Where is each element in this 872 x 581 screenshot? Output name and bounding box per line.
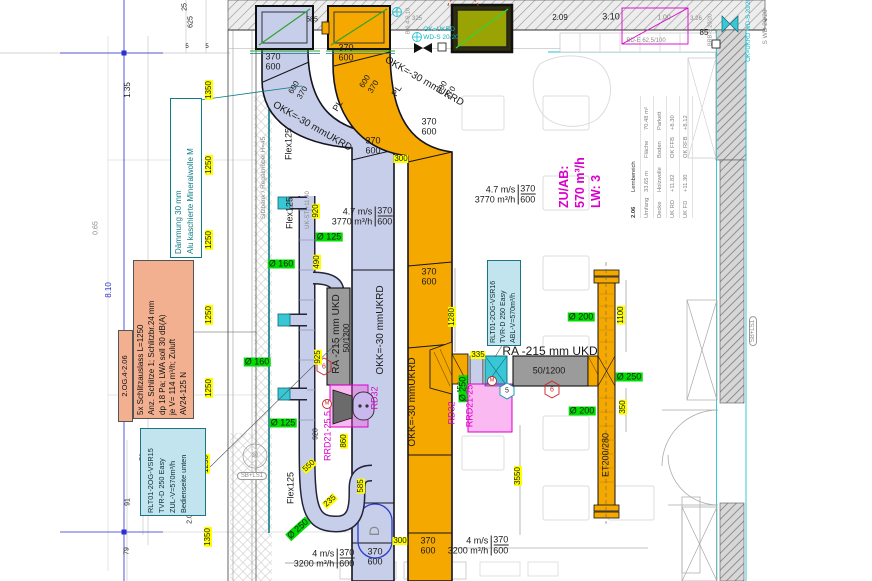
uk-st-label: UK-ST +11.40 [305, 191, 311, 229]
dim-label: 585 [306, 17, 318, 24]
yellow-dim: 1250 [205, 378, 213, 398]
ok-ukrd-note: OK=UKRD WD-S 20/20 [746, 0, 752, 62]
wall-cabinets [682, 300, 717, 581]
dim-label: 91 [125, 498, 132, 506]
yellow-dim: 1100 [617, 305, 625, 324]
motor-label: M [325, 401, 330, 407]
damper-bowtie [414, 43, 423, 53]
position-number: 6 [550, 387, 554, 394]
flow-label-extract: 4.7 m/s3770 m³/h 370600 [475, 184, 536, 205]
silencer-size-label: 50/1200 [533, 367, 566, 376]
duct-size-pair: 370600 [421, 118, 436, 137]
rrd-label: RRD21-25 [466, 385, 475, 428]
dim-label: 325 [412, 16, 422, 22]
b04-label: B-0.4-S.10 [406, 8, 412, 34]
flow-label-extract-bottom: 4 m/s3200 m³/h 370600 [448, 535, 509, 556]
yellow-dim: 300 [392, 537, 407, 545]
dim-label: 5 [185, 44, 188, 50]
yellow-dim: 1250 [205, 305, 213, 325]
flow-label-supply-bottom: 4 m/s3200 m³/h 370600 [294, 548, 355, 569]
duct-size-pair: 370600 [265, 53, 280, 72]
hvac-floor-plan: 585 2.09 3.10 1.00 3.26 85 325 25 625 5 … [0, 0, 872, 581]
diameter-label: Ø 160 [244, 358, 271, 367]
dim-label: 5 [205, 44, 208, 50]
ok-ukrd-note: OK=UKRDWD-S 20/20 [423, 26, 458, 42]
d-marker-label: D [367, 526, 381, 536]
position-number: 6 [322, 364, 326, 371]
door-swings [662, 410, 718, 505]
dim-label: 3.10 [602, 13, 620, 22]
detail-circle-label: 30 [252, 453, 259, 459]
yellow-dim: 300 [393, 155, 408, 163]
dim-label: 1.00 [657, 15, 671, 22]
yellow-dim: 335 [470, 351, 485, 359]
yellow-dim: 1280 [448, 307, 456, 327]
left-wall-band [228, 30, 272, 581]
dim-label: 625 [188, 16, 195, 28]
yellow-dim: 585 [357, 478, 365, 493]
slot-outlet-note: 5x Schlitzauslass L=1250 Anz. Schlitze 1… [133, 260, 194, 419]
dim-label: 79 [124, 547, 131, 555]
yellow-dim: 350 [619, 399, 627, 414]
yellow-dim: 490 [313, 254, 321, 269]
room-tag-strip: 2.OG.4-2.06 [118, 330, 133, 422]
extract-branch [452, 262, 619, 524]
yellow-dim: 860 [340, 433, 348, 448]
room-stamp: 2.06Lernbereich Umfang33.65 mFläche70.48… [628, 96, 694, 218]
et-duct-label: ET200/280 [602, 433, 611, 477]
duct-size-pair: 370600 [420, 537, 435, 556]
vsr15-component-tag: RLT01-2OG-VSR15 TVR-D 250 Easy ZUL-V=570… [140, 428, 206, 516]
yellow-dim: 1250 [205, 230, 213, 250]
duct-size-pair: 370600 [421, 268, 436, 287]
rd32-label: RD32 [448, 401, 457, 424]
rd32-label: RD32 [371, 386, 380, 409]
motor-label: M [490, 378, 495, 384]
silencer-size-label: 50/1200 [343, 324, 351, 353]
ra-level-label: RA -215 mm UKD [332, 294, 342, 373]
yellow-dim: 1350 [204, 527, 212, 547]
insulation-note: Dämmung 30 mm Alu kaschierte Mineralwoll… [170, 98, 202, 258]
yellow-dim: 925 [314, 349, 322, 364]
diameter-label: Ø 160 [268, 260, 295, 269]
diameter-label: Ø 200 [568, 313, 595, 322]
dim-label: 1.35 [124, 82, 132, 98]
duct-size-pair: 370600 [338, 44, 353, 63]
diameter-label: Ø 125 [316, 233, 343, 242]
rrd-label: RRD21-25.5 [324, 411, 333, 461]
sb-ls1-tag: SB+LS1 [237, 472, 267, 480]
bd-e-label: BD-E 62,5/100 [626, 38, 665, 44]
vsr16-component-tag: RLT01-2OG-VSR16 TVR-D 250 Easy ABL-V=570… [487, 260, 521, 346]
diameter-label: Ø 250 [616, 373, 643, 382]
yellow-dim: 1350 [205, 80, 213, 100]
diameter-label: Ø 200 [569, 407, 596, 416]
level-dim-label: 8.10 [105, 282, 113, 298]
ra-level-label: RA -215 mm UKD [502, 345, 597, 357]
dim-label: 2.09 [552, 14, 568, 22]
sitzbank-label: Sitzbank / Regalmöbel H=45 [261, 137, 268, 220]
s-wd-note: S WD 20/20 [763, 9, 770, 44]
flex-label: Flex125 [285, 128, 294, 160]
flex-label: Flex125 [286, 197, 295, 229]
yellow-dim: 1250 [205, 155, 213, 175]
flex-label: Flex125 [287, 472, 296, 504]
duct-size-pair: 370600 [365, 137, 380, 156]
brb-note: BRB-S 20/20 [708, 14, 714, 46]
sb-ls1-tag: SB+LS1 [749, 316, 757, 346]
okk-level-label: OKK=-30 mmUKRD [408, 357, 418, 446]
dim-label: 25 [182, 3, 189, 11]
okk-level-label: OKK=-30 mmUKRD [376, 285, 386, 374]
dim-label: 920 [313, 428, 320, 440]
flow-label-supply: 4.7 m/s3770 m³/h 370600 [332, 206, 393, 227]
yellow-dim: 3550 [514, 466, 522, 486]
dim-label: 0.65 [93, 221, 100, 235]
yellow-dim: 920 [312, 203, 320, 218]
diameter-label: Ø 125 [270, 419, 297, 428]
ceiling-units [250, 5, 512, 54]
dim-label: 3.26 [690, 16, 702, 22]
position-number: 5 [505, 388, 509, 395]
duct-size-pair: 370600 [367, 548, 382, 567]
zuab-airflow-note: ZU/AB: 570 m³/h LW: 3 [556, 110, 612, 208]
